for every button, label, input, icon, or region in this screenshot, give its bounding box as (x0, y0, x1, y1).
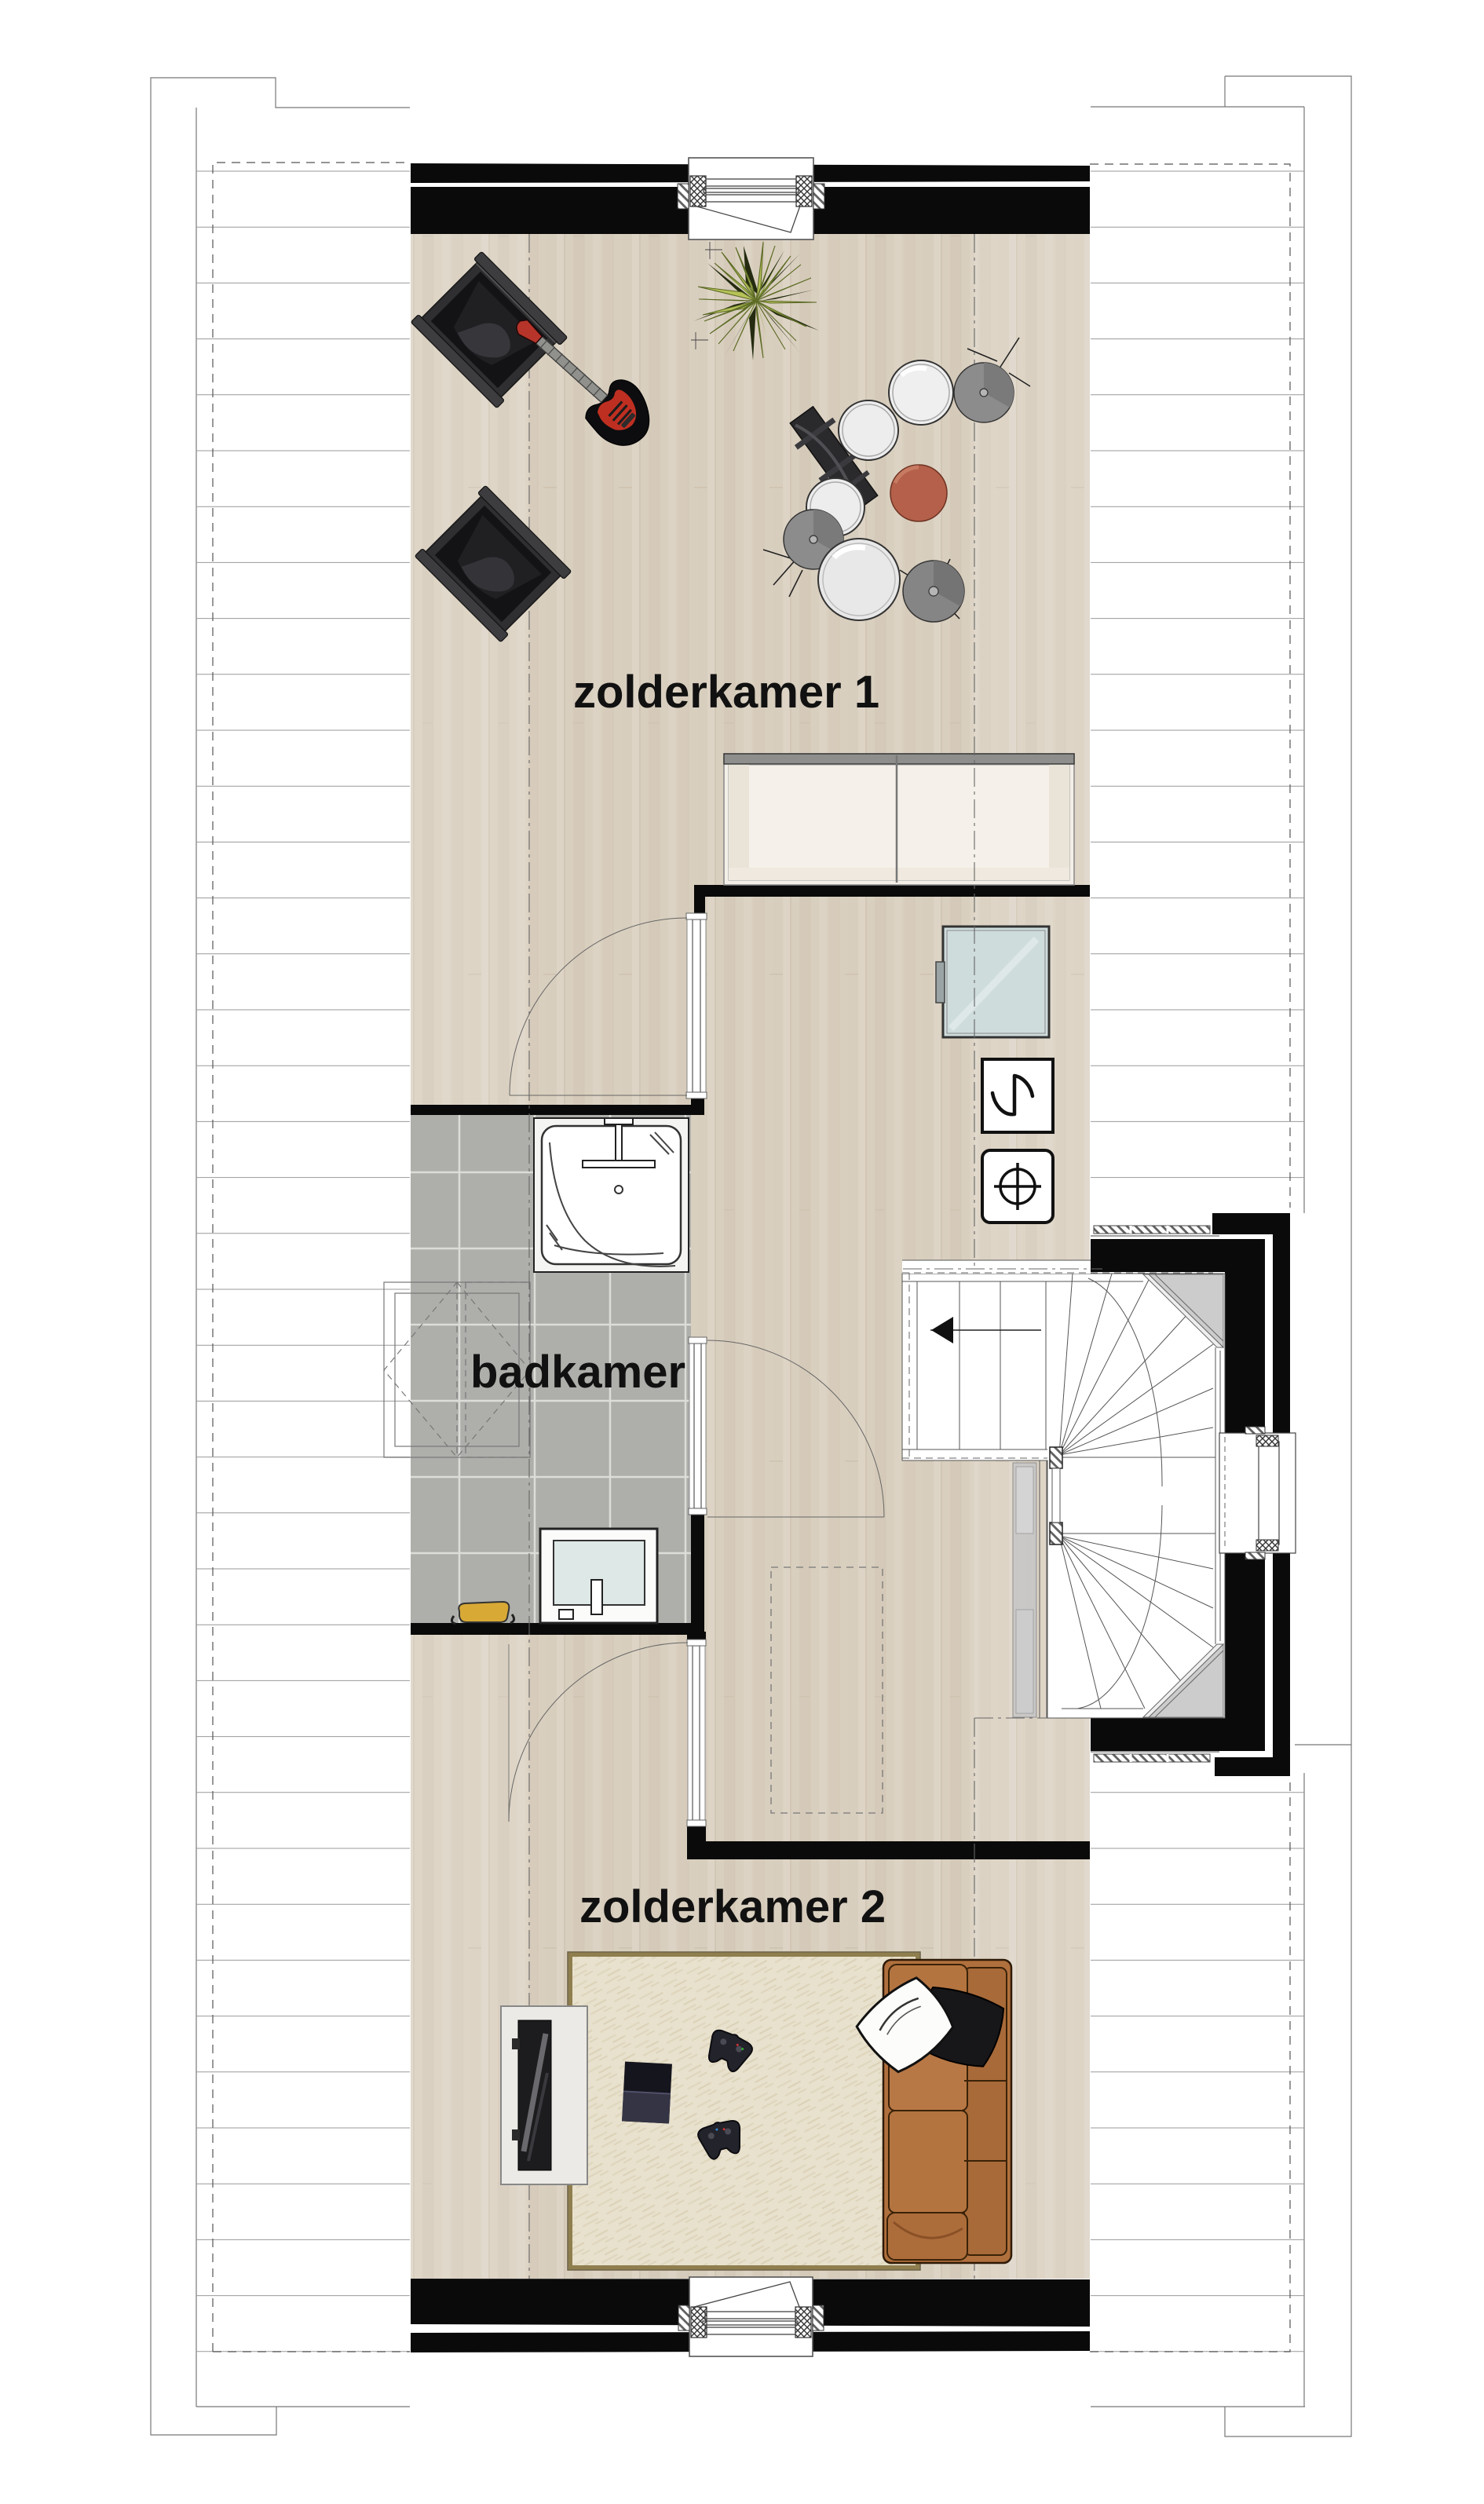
svg-text:zolderkamer 1: zolderkamer 1 (573, 667, 879, 718)
svg-text:badkamer: badkamer (470, 1347, 685, 1398)
svg-text:zolderkamer 2: zolderkamer 2 (579, 1881, 886, 1932)
